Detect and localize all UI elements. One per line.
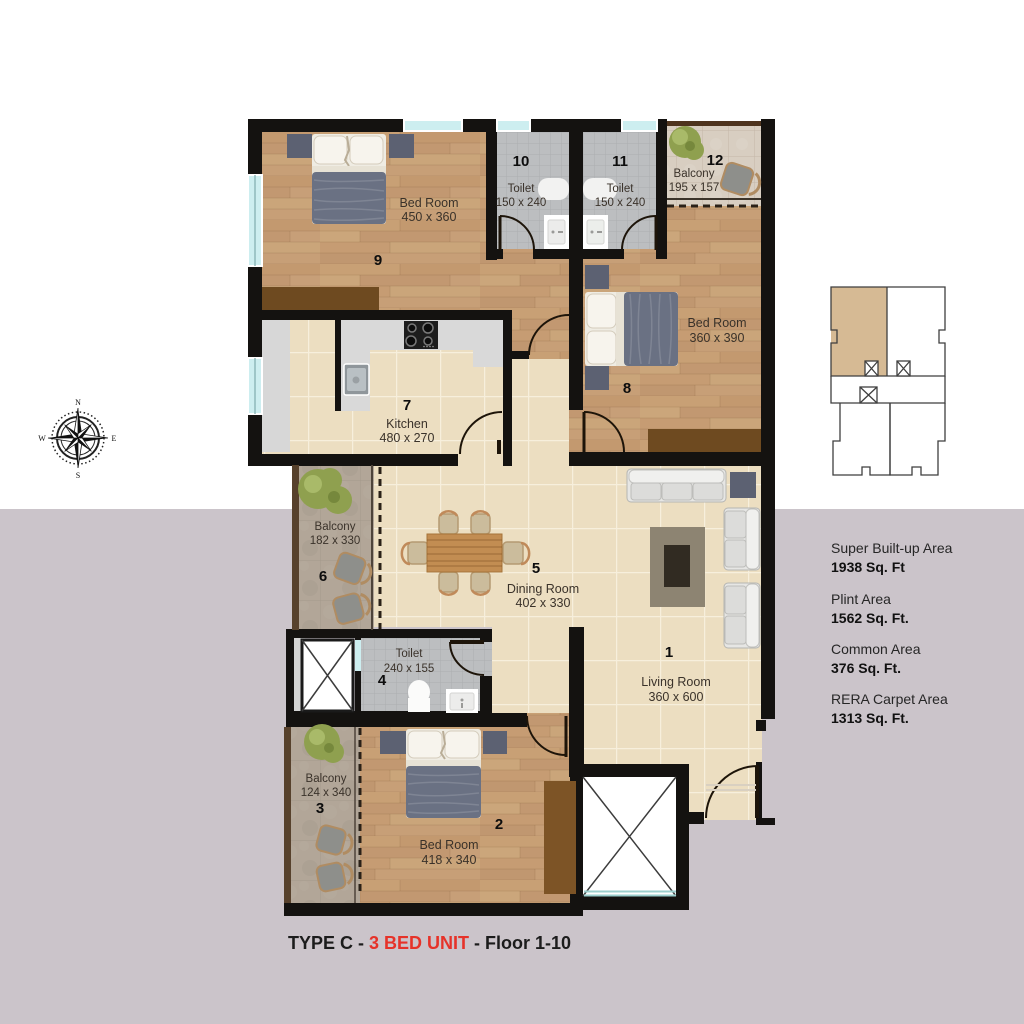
- svg-text:3: 3: [316, 800, 324, 817]
- svg-text:6: 6: [319, 568, 327, 585]
- svg-text:Living Room: Living Room: [641, 675, 710, 689]
- svg-text:Common Area: Common Area: [831, 641, 921, 657]
- svg-text:7: 7: [403, 397, 411, 414]
- svg-text:Balcony: Balcony: [306, 773, 347, 785]
- svg-text:402 x 330: 402 x 330: [516, 596, 571, 610]
- svg-text:4: 4: [378, 672, 387, 689]
- svg-text:1: 1: [665, 644, 673, 661]
- svg-text:E: E: [112, 434, 117, 443]
- svg-text:9: 9: [374, 252, 382, 269]
- svg-text:Toilet: Toilet: [607, 183, 635, 195]
- svg-text:Kitchen: Kitchen: [386, 417, 428, 431]
- svg-text:Bed Room: Bed Room: [419, 838, 478, 852]
- svg-text:Dining Room: Dining Room: [507, 582, 579, 596]
- svg-text:240 x 155: 240 x 155: [384, 663, 435, 675]
- svg-text:Bed Room: Bed Room: [687, 316, 746, 330]
- svg-text:124 x 340: 124 x 340: [301, 787, 352, 799]
- svg-text:360 x 600: 360 x 600: [649, 690, 704, 704]
- svg-text:Toilet: Toilet: [508, 183, 536, 195]
- svg-text:2: 2: [495, 816, 503, 833]
- svg-text:12: 12: [707, 152, 724, 169]
- svg-text:Plint Area: Plint Area: [831, 591, 891, 607]
- svg-text:1938 Sq. Ft: 1938 Sq. Ft: [831, 559, 905, 575]
- svg-text:1562 Sq. Ft.: 1562 Sq. Ft.: [831, 610, 909, 626]
- svg-text:W: W: [38, 434, 46, 443]
- svg-text:150 x 240: 150 x 240: [496, 197, 547, 209]
- svg-text:Toilet: Toilet: [396, 648, 424, 660]
- svg-text:10: 10: [513, 153, 530, 170]
- svg-text:450 x 360: 450 x 360: [402, 210, 457, 224]
- svg-text:N: N: [75, 398, 81, 407]
- svg-text:376 Sq. Ft.: 376 Sq. Ft.: [831, 660, 901, 676]
- svg-text:182 x 330: 182 x 330: [310, 535, 361, 547]
- svg-text:Bed Room: Bed Room: [399, 196, 458, 210]
- svg-text:8: 8: [623, 380, 631, 397]
- svg-text:11: 11: [612, 153, 628, 170]
- svg-text:418 x 340: 418 x 340: [422, 853, 477, 867]
- svg-text:195 x 157: 195 x 157: [669, 182, 720, 194]
- svg-text:Super Built-up Area: Super Built-up Area: [831, 540, 953, 556]
- svg-text:Balcony: Balcony: [315, 521, 356, 533]
- svg-text:150 x 240: 150 x 240: [595, 197, 646, 209]
- svg-text:Balcony: Balcony: [674, 168, 715, 180]
- svg-text:S: S: [76, 471, 80, 480]
- svg-text:480 x 270: 480 x 270: [380, 431, 435, 445]
- svg-text:360 x 390: 360 x 390: [690, 331, 745, 345]
- svg-text:1313 Sq. Ft.: 1313 Sq. Ft.: [831, 710, 909, 726]
- svg-text:RERA Carpet Area: RERA Carpet Area: [831, 691, 948, 707]
- svg-text:TYPE C - 3 BED UNIT - Floor 1-: TYPE C - 3 BED UNIT - Floor 1-10: [288, 933, 571, 953]
- svg-text:5: 5: [532, 560, 540, 577]
